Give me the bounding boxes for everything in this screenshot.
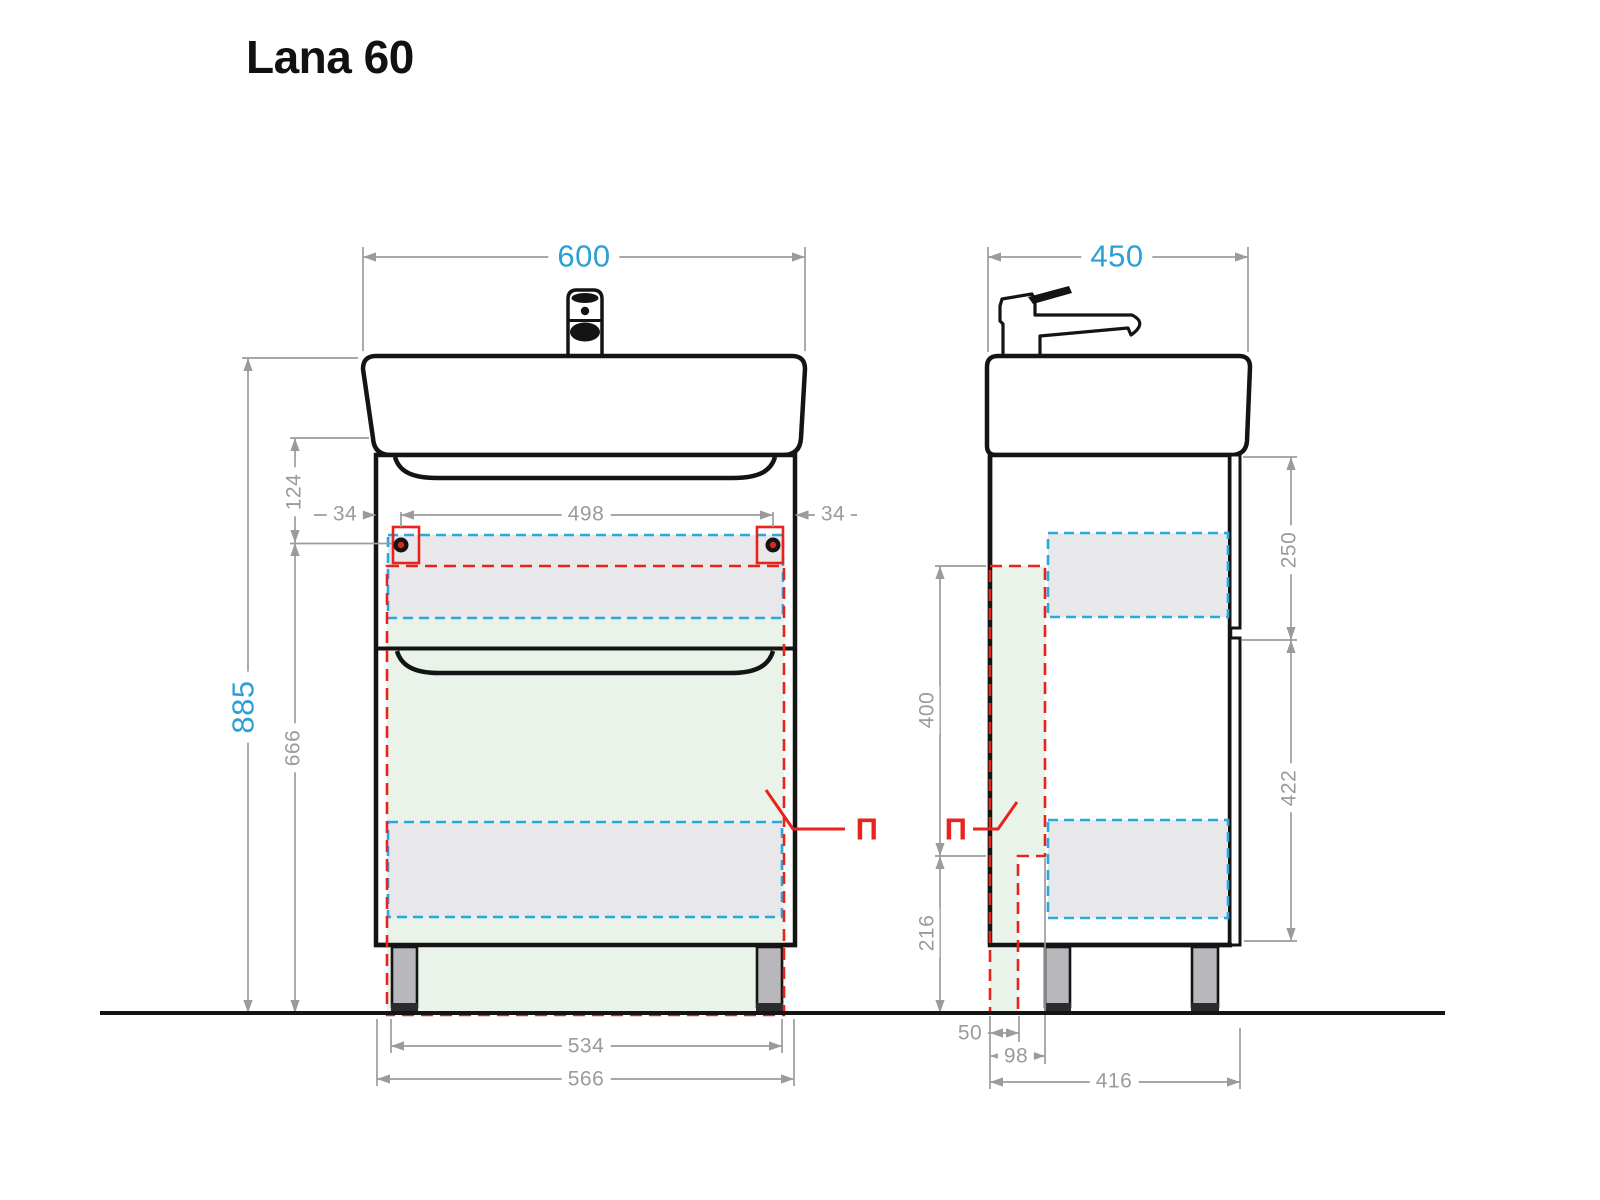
dim-side-total-depth: 450	[1081, 239, 1152, 274]
dim-front-holes-to-floor: 666	[281, 724, 306, 773]
dim-front-holes-span: 498	[562, 502, 611, 527]
side-top-drawer-fill	[1048, 533, 1228, 617]
front-top-drawer-fill	[388, 535, 783, 618]
dim-front-total-width: 600	[548, 239, 619, 274]
front-sink	[363, 356, 805, 455]
side-drawer-front-panel	[1230, 455, 1240, 628]
page-title: Lana 60	[246, 30, 414, 84]
side-bottom-drawer-fill	[1048, 820, 1228, 918]
dim-side-drawer-height: 250	[1277, 526, 1302, 575]
side-sink	[987, 356, 1250, 455]
dim-front-hole-inset-right: 34	[815, 502, 851, 527]
dim-side-cutout-to-floor: 216	[915, 909, 940, 958]
front-leg-left	[391, 947, 418, 1011]
side-faucet-icon	[1000, 286, 1140, 357]
dim-side-cabinet-depth: 416	[1090, 1069, 1139, 1094]
dim-front-total-height: 885	[226, 671, 261, 742]
dim-side-cutout-depth: 98	[998, 1044, 1034, 1069]
front-service-zone-fill	[387, 566, 784, 1015]
side-view	[935, 247, 1297, 1089]
front-view	[242, 247, 857, 1086]
side-door-front-panel	[1230, 638, 1240, 945]
dim-side-door-height: 422	[1277, 764, 1302, 813]
front-leg-right	[756, 947, 783, 1011]
dim-front-legs-span: 534	[562, 1034, 611, 1059]
front-section-mark: П	[856, 814, 879, 845]
side-leg-front	[1044, 947, 1071, 1011]
drawing-canvas	[0, 0, 1600, 1200]
dim-front-sink-to-holes: 124	[282, 468, 307, 517]
technical-drawing-page: Lana 60 600 885 124 666 34 498 34 534 56…	[0, 0, 1600, 1200]
front-bottom-drawer-fill	[388, 822, 782, 917]
front-faucet-icon	[568, 290, 602, 357]
dim-front-cabinet-width: 566	[562, 1067, 611, 1092]
side-leg-back	[1191, 947, 1219, 1011]
side-section-mark: П	[945, 814, 968, 845]
dim-side-cutout-height: 400	[915, 686, 940, 735]
dim-front-hole-inset-left: 34	[327, 502, 363, 527]
dim-side-step-depth: 50	[952, 1021, 988, 1046]
